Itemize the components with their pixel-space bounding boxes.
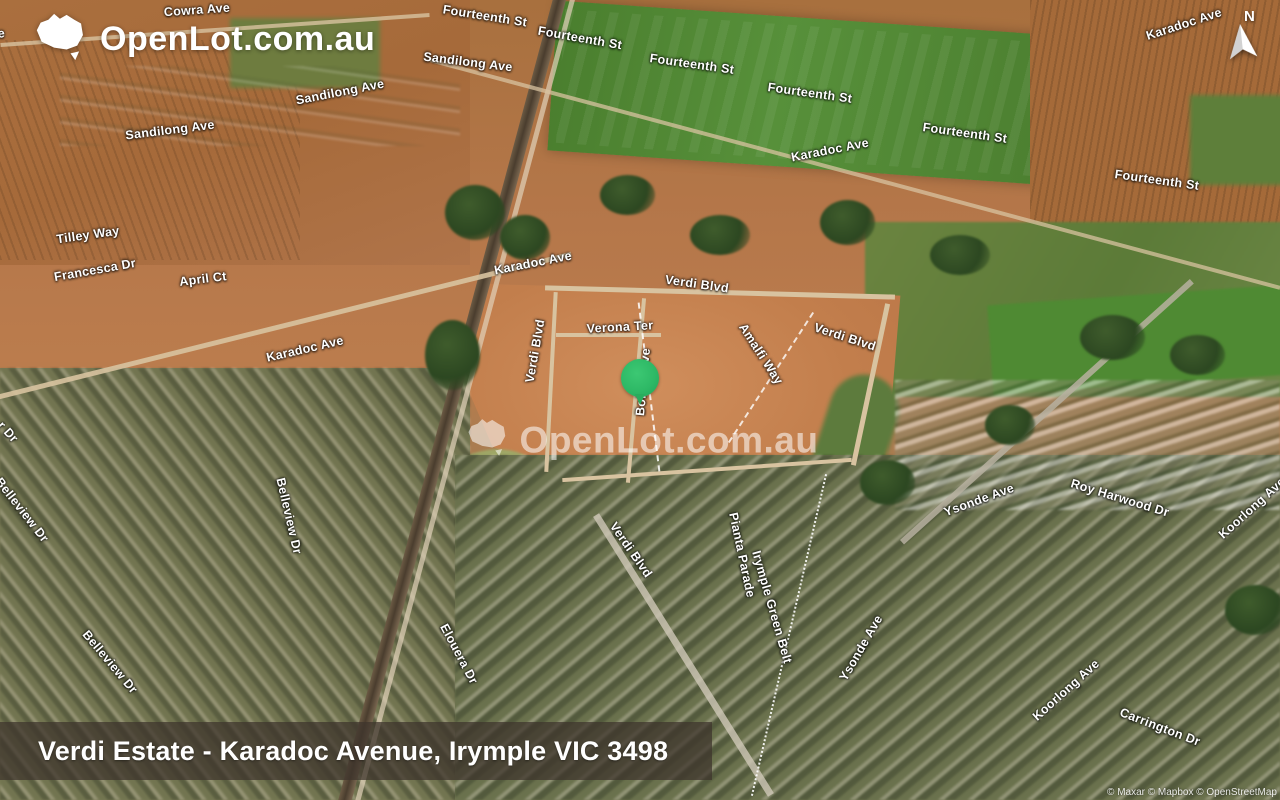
australia-map-icon	[28, 12, 86, 67]
terrain-residential-right-strip	[895, 380, 1280, 510]
logo-text: OpenLot.com.au	[100, 20, 375, 59]
tree-cluster	[860, 460, 915, 505]
tree-cluster	[600, 175, 655, 215]
location-pin[interactable]	[621, 359, 659, 409]
estate-title-banner: Verdi Estate - Karadoc Avenue, Irymple V…	[0, 722, 712, 780]
tree-cluster	[1080, 315, 1145, 360]
road-verona-ter	[556, 333, 661, 337]
map-attribution: © Maxar © Mapbox © OpenStreetMap	[1107, 787, 1277, 798]
openlot-logo: OpenLot.com.au	[28, 12, 375, 67]
compass[interactable]: N	[1222, 8, 1270, 64]
compass-arrow-icon	[1224, 22, 1260, 61]
tree-cluster	[500, 215, 550, 260]
tree-cluster	[820, 200, 875, 245]
estate-title: Verdi Estate - Karadoc Avenue, Irymple V…	[0, 736, 668, 767]
tree-cluster	[985, 405, 1035, 445]
tree-cluster	[1225, 585, 1280, 635]
terrain-houses-sandilong	[60, 66, 460, 146]
map-view: Cowra AveCowra AveFourteenth StFourteent…	[0, 0, 1280, 800]
tree-cluster	[1170, 335, 1225, 375]
tree-cluster	[445, 185, 505, 240]
tree-cluster	[690, 215, 750, 255]
tree-cluster	[425, 320, 480, 390]
pin-tail	[635, 394, 645, 405]
terrain-green-topright	[1190, 95, 1280, 185]
tree-cluster	[930, 235, 990, 275]
pin-circle	[621, 359, 659, 397]
